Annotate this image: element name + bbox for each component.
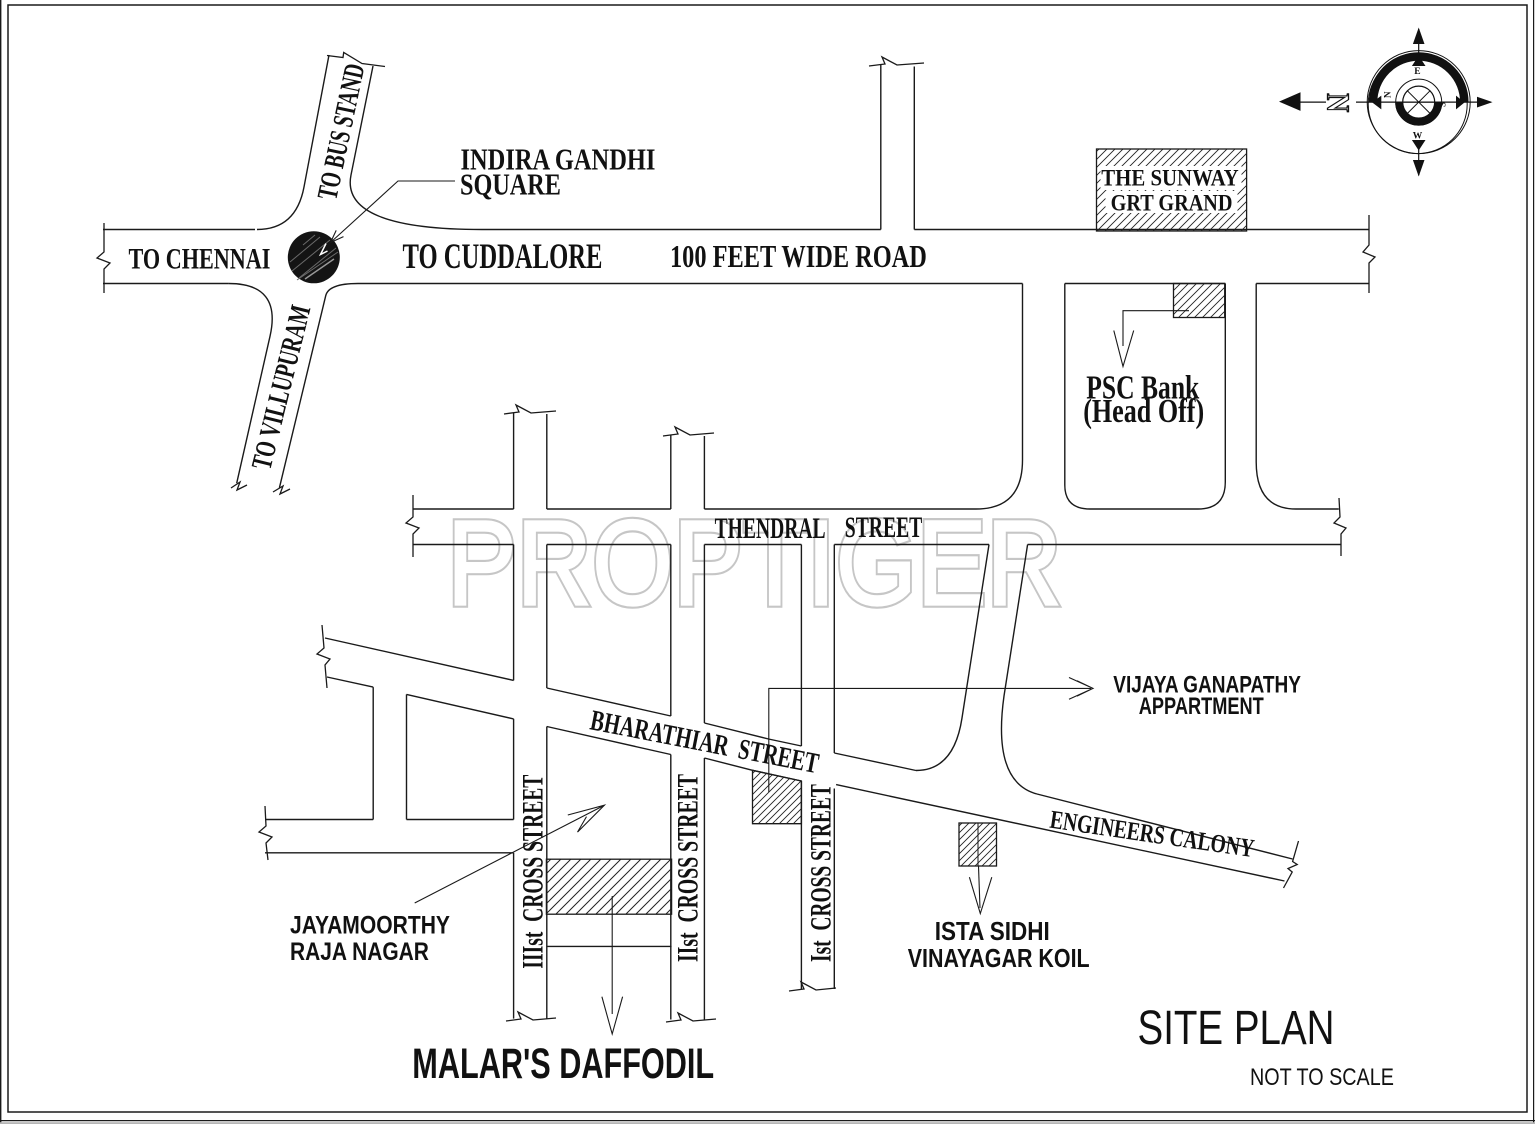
svg-text:N: N: [1320, 93, 1355, 112]
svg-text:RAJA NAGAR: RAJA NAGAR: [290, 937, 429, 965]
svg-text:E: E: [1414, 67, 1420, 77]
svg-text:TO CHENNAI: TO CHENNAI: [129, 241, 271, 275]
svg-text:Ist CROSS STREET: Ist CROSS STREET: [804, 784, 837, 962]
svg-text:STREET: STREET: [845, 511, 923, 544]
svg-text:THENDRAL: THENDRAL: [715, 512, 826, 545]
svg-text:MALAR'S DAFFODIL: MALAR'S DAFFODIL: [412, 1039, 714, 1087]
svg-text:SQUARE: SQUARE: [460, 168, 561, 203]
svg-text:ISTA SIDHI: ISTA SIDHI: [935, 917, 1050, 946]
svg-text:VINAYAGAR KOIL: VINAYAGAR KOIL: [908, 944, 1090, 973]
svg-text:IIst CROSS STREET: IIst CROSS STREET: [672, 774, 705, 962]
svg-text:JAYAMOORTHY: JAYAMOORTHY: [290, 911, 450, 939]
svg-text:W: W: [1413, 132, 1423, 142]
svg-text:APPARTMENT: APPARTMENT: [1139, 691, 1264, 719]
svg-text:GRT GRAND: GRT GRAND: [1111, 189, 1233, 216]
svg-text:N: N: [1382, 91, 1392, 98]
svg-text:THE SUNWAY: THE SUNWAY: [1101, 164, 1238, 190]
svg-text:NOT TO SCALE: NOT TO SCALE: [1250, 1063, 1394, 1091]
svg-text:IIIst CROSS STREET: IIIst CROSS STREET: [516, 775, 549, 969]
svg-text:S: S: [1438, 102, 1448, 107]
svg-text:TO CUDDALORE: TO CUDDALORE: [403, 237, 603, 277]
svg-text:(Head Off): (Head Off): [1083, 392, 1204, 430]
svg-text:100 FEET WIDE ROAD: 100 FEET WIDE ROAD: [670, 240, 927, 275]
svg-text:SITE PLAN: SITE PLAN: [1138, 1002, 1335, 1055]
